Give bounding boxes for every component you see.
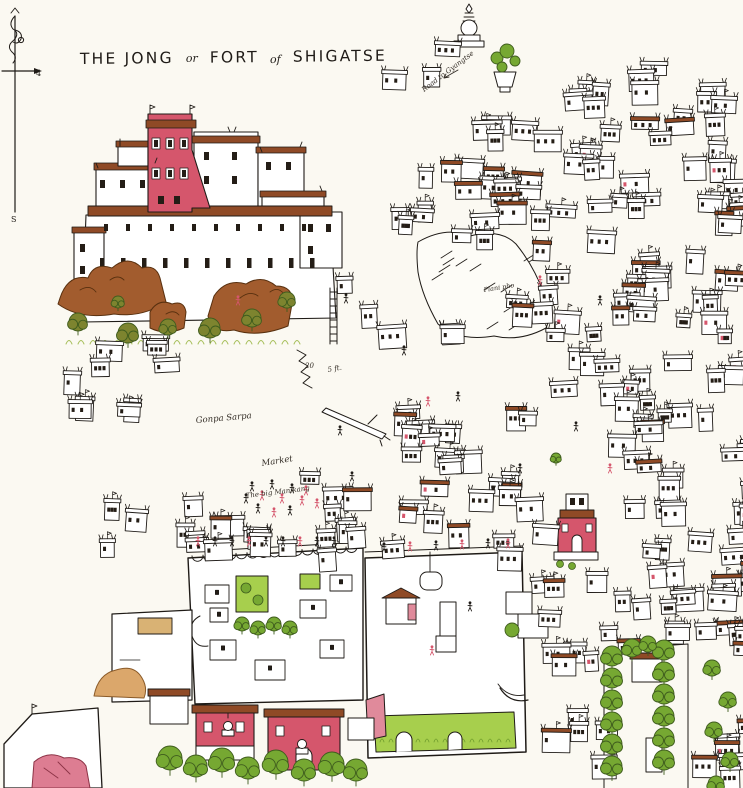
town-house <box>496 543 524 571</box>
town-house <box>630 77 659 106</box>
town-house <box>586 567 609 592</box>
town-house <box>342 484 373 511</box>
compass-scale-label: 4 <box>36 69 41 78</box>
town-house <box>511 299 535 327</box>
town-house <box>657 472 681 500</box>
town-house <box>551 650 578 676</box>
town-house <box>62 367 82 395</box>
shigatse-map-drawing: 4 S THE JONG or FORT of SHIGATSE <box>0 0 743 788</box>
town-house <box>682 153 708 181</box>
town-house <box>440 156 463 182</box>
title-part-2: or <box>186 52 199 65</box>
town-house <box>647 561 669 589</box>
town-house <box>533 126 563 152</box>
town-house <box>684 245 705 274</box>
market-plaza <box>365 546 548 758</box>
town-house <box>249 528 273 556</box>
town-house <box>316 544 338 572</box>
compass-south-label: S <box>11 215 16 224</box>
label-steps-count: 20 <box>304 362 314 370</box>
town-house <box>67 393 92 419</box>
town-house <box>691 751 718 778</box>
town-house <box>697 404 715 432</box>
title-part-3: FORT <box>210 48 259 67</box>
title-part-5: SHIGATSE <box>293 47 387 66</box>
town-house <box>447 519 471 548</box>
town-house <box>706 364 726 392</box>
shigatse-map-page: 4 S THE JONG or FORT of SHIGATSE <box>0 0 743 788</box>
town-house <box>660 498 688 527</box>
title-part-4: of <box>270 53 283 66</box>
title-part-1: THE JONG <box>79 49 174 68</box>
